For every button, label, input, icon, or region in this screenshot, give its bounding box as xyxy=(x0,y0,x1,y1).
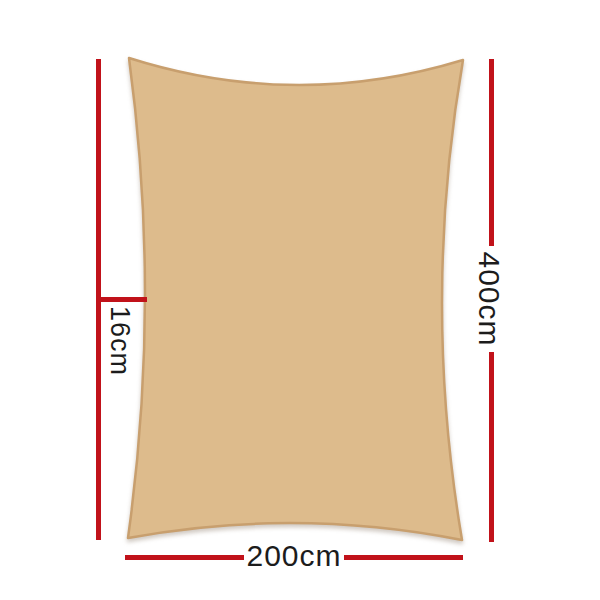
dimension-line-bottom-right xyxy=(344,555,463,560)
dimension-label-bottom: 200cm xyxy=(246,539,341,573)
dimension-line-right-lower xyxy=(489,352,494,542)
dimension-line-right-upper xyxy=(489,59,494,246)
dimension-label-left: 16cm xyxy=(104,306,135,376)
shade-sail-image xyxy=(0,0,600,600)
dimension-tick-left xyxy=(96,297,147,302)
dimension-line-bottom-left xyxy=(125,555,244,560)
product-dimension-diagram: 16cm 400cm 200cm xyxy=(0,0,600,600)
shade-sail-shape xyxy=(128,58,463,540)
dimension-label-right: 400cm xyxy=(472,251,506,346)
